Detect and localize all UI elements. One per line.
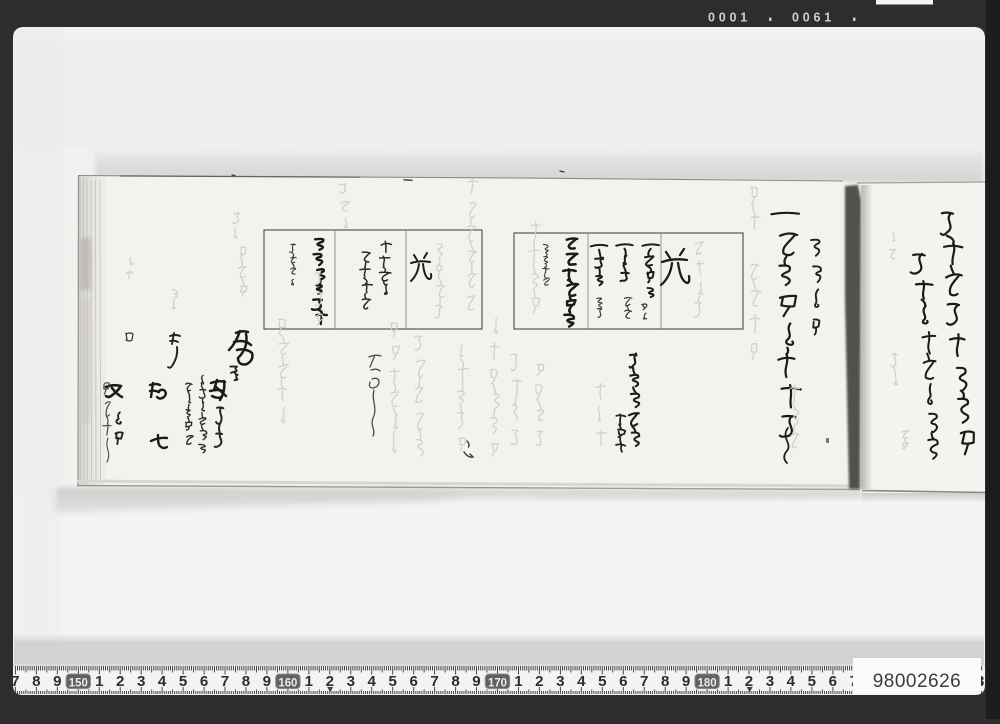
svg-text:3: 3 [556, 674, 564, 690]
svg-text:8: 8 [32, 674, 40, 690]
svg-text:6: 6 [619, 674, 627, 690]
svg-text:9: 9 [472, 674, 480, 690]
svg-text:5: 5 [808, 674, 816, 690]
svg-text:1: 1 [305, 674, 313, 690]
svg-text:180: 180 [698, 675, 717, 689]
svg-text:6: 6 [829, 674, 837, 690]
svg-text:2: 2 [116, 674, 124, 690]
svg-text:3: 3 [347, 674, 355, 690]
svg-text:0061: 0061 [792, 11, 835, 25]
svg-text:4: 4 [368, 674, 377, 690]
svg-text:1: 1 [95, 674, 103, 690]
svg-text:98002626: 98002626 [873, 671, 962, 692]
svg-text:9: 9 [263, 674, 271, 690]
svg-text:6: 6 [200, 674, 208, 690]
svg-text:7: 7 [430, 674, 438, 690]
svg-text:9: 9 [53, 674, 61, 690]
svg-text:6: 6 [410, 674, 418, 690]
svg-text:7: 7 [640, 674, 648, 690]
svg-text:8: 8 [242, 674, 250, 690]
svg-text:160: 160 [278, 675, 297, 689]
svg-text:8: 8 [451, 674, 459, 690]
svg-text:4: 4 [787, 674, 796, 690]
svg-text:170: 170 [488, 675, 507, 689]
svg-text:0001: 0001 [708, 11, 751, 25]
svg-text:5: 5 [598, 674, 606, 690]
svg-text:3: 3 [766, 674, 774, 690]
svg-text:1: 1 [724, 674, 732, 690]
svg-text:1: 1 [514, 674, 522, 690]
svg-text:3: 3 [137, 674, 145, 690]
svg-text:7: 7 [221, 674, 229, 690]
svg-text:150: 150 [69, 675, 88, 689]
svg-text:9: 9 [682, 674, 690, 690]
svg-text:4: 4 [577, 674, 586, 690]
svg-text:5: 5 [389, 674, 397, 690]
svg-text:8: 8 [661, 674, 669, 690]
svg-text:5: 5 [179, 674, 187, 690]
svg-text:2: 2 [535, 674, 543, 690]
svg-text:4: 4 [158, 674, 167, 690]
